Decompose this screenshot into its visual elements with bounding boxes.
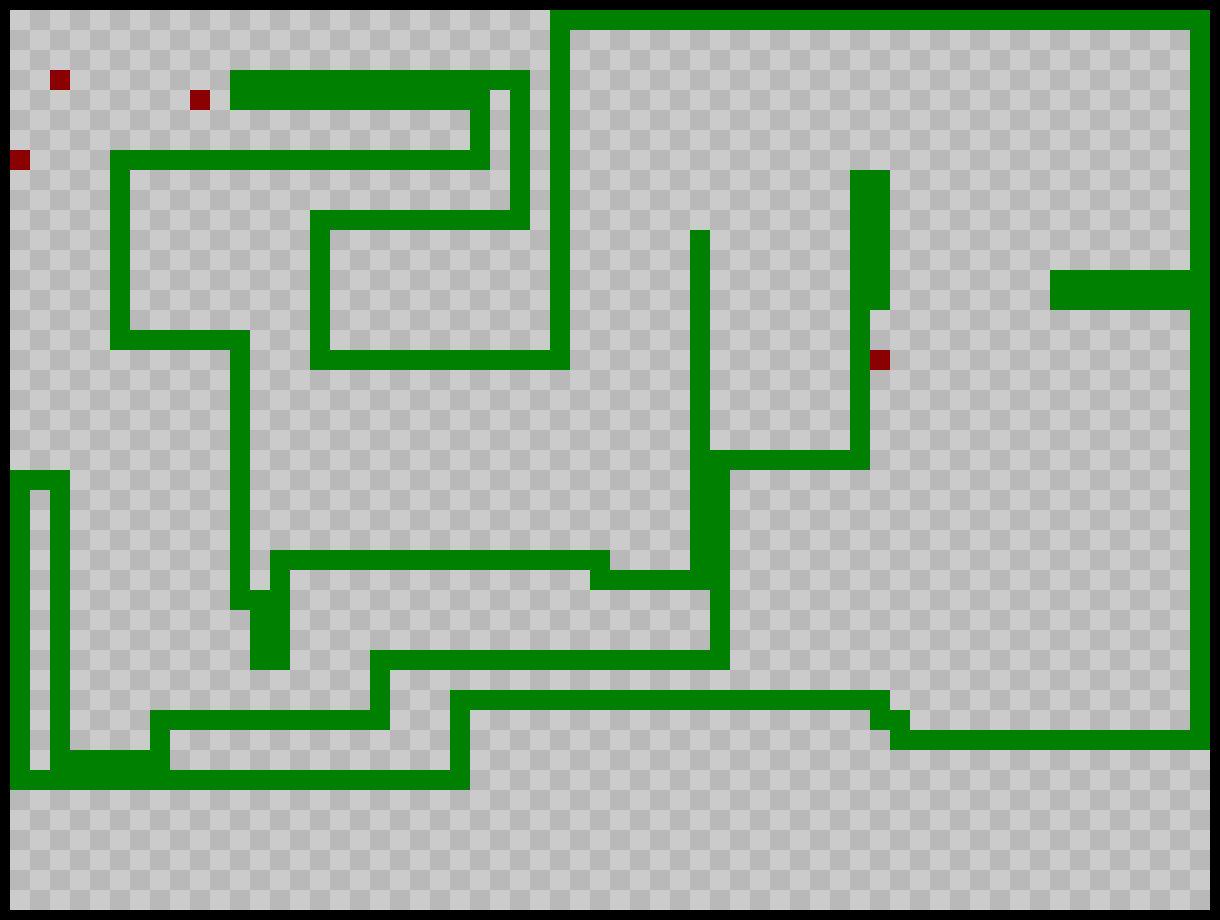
snake-segment [230,70,530,90]
snake-segment [310,210,530,230]
snake-segment [550,10,1210,30]
snake-segment [270,550,610,570]
snake-segment [310,210,330,370]
game-board[interactable] [10,10,1210,910]
food-pellet [190,90,210,110]
snake-segment [1050,270,1190,310]
snake-segment [310,350,570,370]
snake-segment [270,550,290,670]
game-frame [0,0,1220,920]
snake-segment [710,450,730,650]
snake-segment [890,730,1210,750]
snake-segment [110,330,250,350]
food-pellet [870,350,890,370]
snake-segment [1190,10,1210,750]
snake-segment [590,570,710,590]
snake-segment [850,170,870,470]
snake-segment [50,470,70,770]
snake-segment [550,10,570,370]
snake-segment [150,710,390,730]
snake-segment [450,690,890,710]
snake-segment [10,470,30,790]
snake-segment [230,330,250,610]
food-pellet [50,70,70,90]
snake-segment [870,710,910,730]
snake-segment [690,230,710,590]
snake-segment [110,150,130,350]
snake-segment [10,770,470,790]
snake-segment [370,650,730,670]
snake-segment [250,590,270,670]
snake-segment [230,90,490,110]
snake-segment [510,70,530,230]
snake-segment [110,150,490,170]
food-pellet [10,150,30,170]
snake-segment [690,450,870,470]
snake-segment [870,170,890,310]
